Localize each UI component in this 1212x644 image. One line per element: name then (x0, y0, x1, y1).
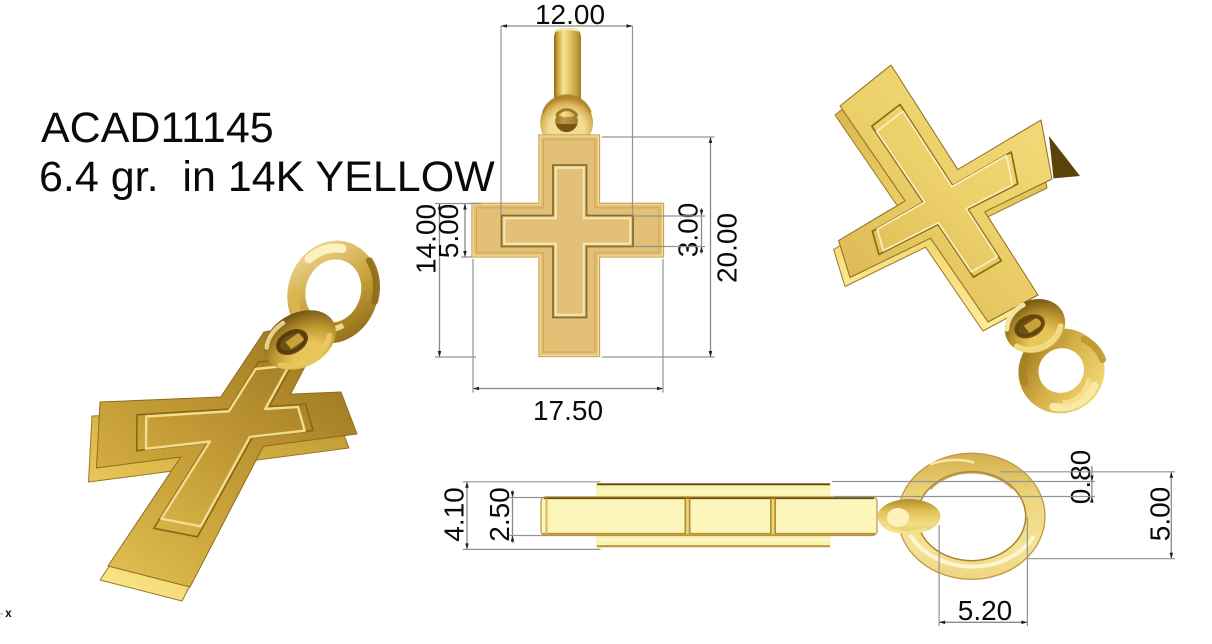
svg-text:20.00: 20.00 (712, 213, 743, 283)
svg-text:5.00: 5.00 (433, 204, 464, 259)
svg-text:x: x (5, 608, 12, 620)
svg-text:4.10: 4.10 (439, 487, 470, 542)
svg-text:6.4 gr. in 14K YELLOW: 6.4 gr. in 14K YELLOW (39, 153, 495, 201)
svg-text:ACAD11145: ACAD11145 (41, 104, 274, 152)
svg-text:17.50: 17.50 (533, 395, 603, 426)
svg-text:3.00: 3.00 (673, 203, 704, 258)
svg-text:5.20: 5.20 (958, 595, 1013, 626)
svg-text:2.50: 2.50 (484, 487, 515, 542)
